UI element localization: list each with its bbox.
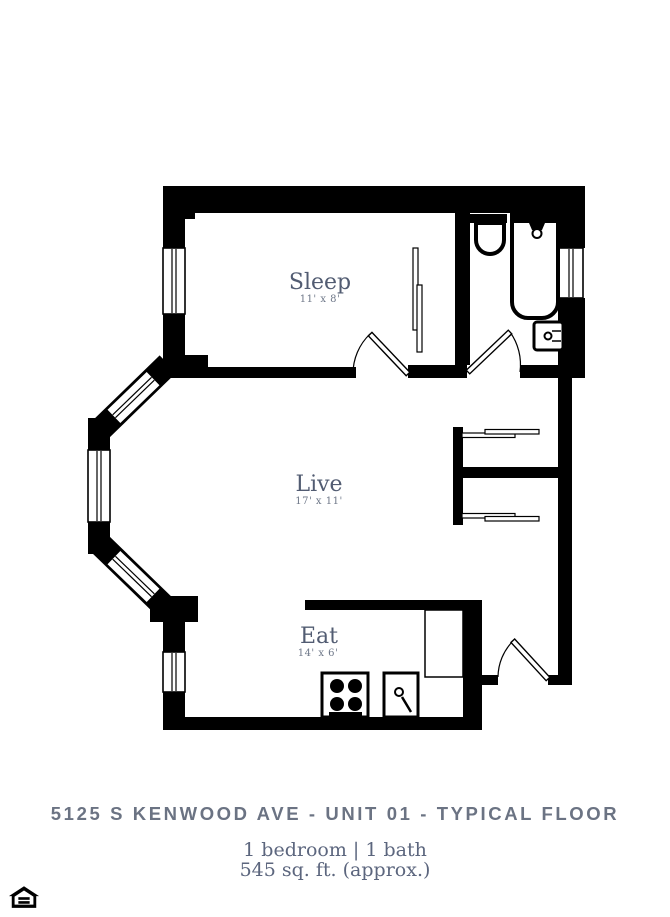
live-room-dimensions: 17' x 11' xyxy=(295,496,342,507)
kitchen-sink-icon xyxy=(384,673,418,717)
plan-title: 5125 S KENWOOD AVE - UNIT 01 - TYPICAL F… xyxy=(0,803,670,825)
sleep-room-label: Sleep xyxy=(289,270,351,295)
entry-door-icon xyxy=(498,639,550,681)
stove-icon xyxy=(322,673,368,717)
sleep-room-dimensions: 11' x 8' xyxy=(300,294,341,305)
sleep-closet-slider-icon xyxy=(413,248,422,352)
bay-center-window-icon xyxy=(88,450,110,522)
bathtub-icon xyxy=(512,214,558,318)
sleep-window-icon xyxy=(163,248,185,314)
eat-window-icon xyxy=(163,652,185,692)
equal-housing-logo-icon xyxy=(8,886,40,916)
floor-plan: Sleep 11' x 8' Live 17' x 11' Eat 14' x … xyxy=(0,0,670,790)
bath-window-icon xyxy=(559,248,583,298)
sleep-door-icon xyxy=(353,332,410,375)
square-footage: 545 sq. ft. (approx.) xyxy=(0,859,670,881)
closet-south-slider-icon xyxy=(462,514,539,522)
bay-upper-window-icon xyxy=(106,371,160,424)
live-room-label: Live xyxy=(295,472,342,497)
toilet-icon xyxy=(468,214,507,254)
refrigerator-icon xyxy=(425,610,463,677)
bed-bath-summary: 1 bedroom | 1 bath xyxy=(0,839,670,861)
closet-north-slider-icon xyxy=(462,430,539,438)
bathroom-sink-icon xyxy=(534,322,563,350)
eat-room-label: Eat xyxy=(300,624,338,649)
eat-room-dimensions: 14' x 6' xyxy=(298,648,339,659)
bay-lower-window-icon xyxy=(106,550,160,603)
bathroom-door-icon xyxy=(466,330,520,374)
